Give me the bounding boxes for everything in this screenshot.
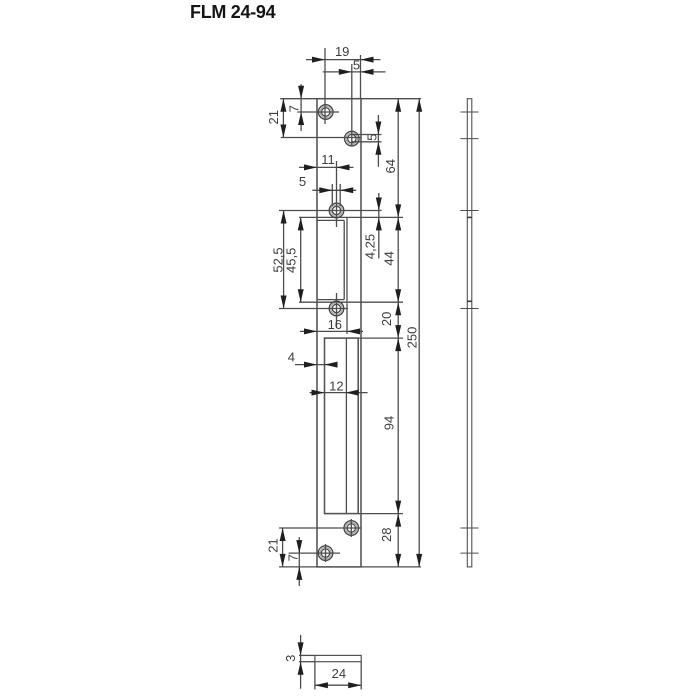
svg-text:3: 3 [283,655,298,662]
svg-text:24: 24 [332,666,346,681]
svg-text:7: 7 [286,554,301,561]
svg-text:64: 64 [383,159,398,173]
svg-text:5: 5 [353,57,360,72]
svg-text:45,5: 45,5 [283,248,298,273]
svg-text:5: 5 [364,134,379,141]
svg-text:4,25: 4,25 [363,234,378,259]
svg-text:19: 19 [335,44,349,59]
svg-text:FLM 24-94: FLM 24-94 [190,2,276,22]
svg-text:21: 21 [266,538,281,552]
svg-text:12: 12 [329,378,343,393]
svg-text:20: 20 [379,312,394,326]
svg-text:4: 4 [288,350,295,365]
svg-text:94: 94 [382,416,397,430]
svg-text:7: 7 [286,105,301,112]
svg-text:16: 16 [328,317,342,332]
svg-text:5: 5 [299,174,306,189]
svg-text:44: 44 [382,251,397,265]
svg-text:21: 21 [266,110,281,124]
svg-text:28: 28 [379,528,394,542]
svg-text:250: 250 [405,327,420,349]
svg-text:11: 11 [321,152,335,167]
